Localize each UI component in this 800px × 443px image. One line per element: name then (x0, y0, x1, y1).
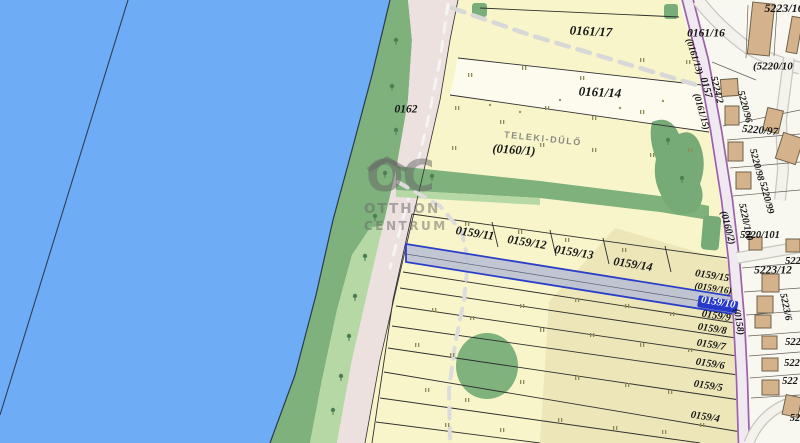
ground-dot-symbol (662, 100, 664, 102)
ground-dot-symbol (619, 107, 621, 109)
building (725, 106, 739, 125)
map-label-52-e: 52 (790, 414, 800, 425)
ground-dot-symbol (559, 99, 561, 101)
map-label-5220-101: 5220/101 (740, 231, 780, 242)
building (757, 296, 773, 313)
building (736, 172, 751, 189)
map-label-5223-16: 5223/16 (764, 2, 800, 14)
building (728, 142, 743, 161)
map-label-0161-17: 0161/17 (569, 23, 612, 38)
map-label-5220-10: (5220/10 (753, 62, 793, 73)
map-base-layer (0, 0, 800, 443)
map-label-0162: 0162 (395, 104, 418, 116)
green-patch-small-3 (701, 215, 722, 250)
building (786, 239, 800, 252)
map-label-0160-1: (0160/1) (492, 142, 536, 157)
map-label-522-a: 522 (785, 257, 800, 268)
map-label-522-d: 522 (782, 377, 798, 388)
building (762, 358, 778, 371)
map-canvas[interactable]: OC OTTHON CENTRUM 0161/170161/140161/160… (0, 0, 800, 443)
map-label-522-b: 522 (785, 338, 800, 349)
map-label-522-c: 522 (784, 359, 800, 370)
building (762, 380, 779, 395)
building (762, 336, 777, 349)
building (786, 16, 800, 53)
map-label-0161-14: 0161/14 (578, 84, 621, 99)
building (755, 315, 771, 328)
ground-dot-symbol (519, 111, 521, 113)
ground-dot-symbol (489, 104, 491, 106)
